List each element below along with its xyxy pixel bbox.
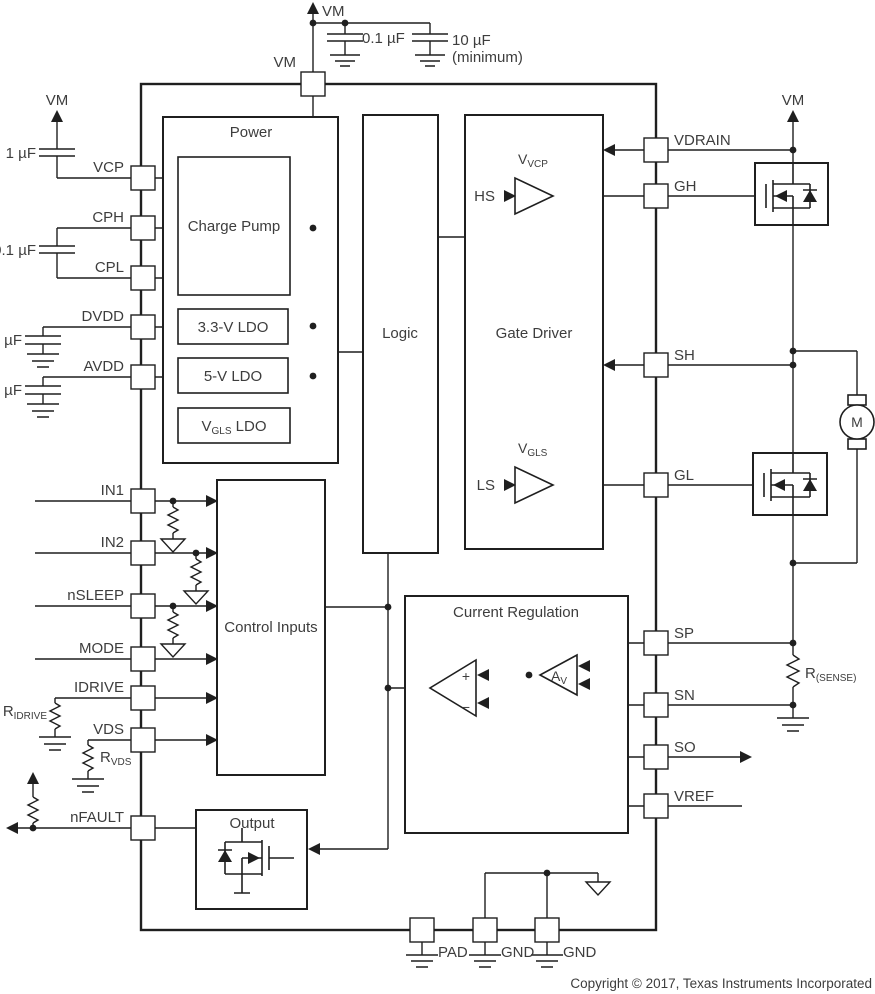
charge-pump-title: Charge Pump <box>188 218 281 235</box>
control-inputs-title: Control Inputs <box>224 619 317 636</box>
pin-label-gl: GL <box>674 467 694 484</box>
pin-nfault <box>131 816 155 840</box>
vds-resistor <box>83 745 93 771</box>
pin-label-sn: SN <box>674 687 695 704</box>
pin-label-idrive: IDRIVE <box>74 679 124 696</box>
motor-terminal-top <box>848 395 866 405</box>
ldo-3v3-title: 3.3-V LDO <box>198 319 269 336</box>
nsleep-pulldown-resistor <box>168 612 178 638</box>
pin-label-nsleep: nSLEEP <box>67 587 124 604</box>
pin-gh <box>644 184 668 208</box>
pin-idrive <box>131 686 155 710</box>
gate-driver-title: Gate Driver <box>496 325 573 342</box>
pin-nsleep <box>131 594 155 618</box>
cap-dvdd-label: 1 µF <box>0 332 22 349</box>
block-diagram: M <box>0 0 875 994</box>
pin-vcp <box>131 166 155 190</box>
current-regulation-block <box>405 596 628 833</box>
power-title: Power <box>230 124 273 141</box>
pin-sn <box>644 693 668 717</box>
ldo-vgls-title: VGLS LDO <box>201 418 266 437</box>
pin-vref <box>644 794 668 818</box>
vdrain-arrow <box>603 144 615 156</box>
high-side-mosfet <box>755 163 828 225</box>
cap-bulk2-label-2: (minimum) <box>452 49 523 66</box>
output-block-arrow <box>308 843 320 855</box>
current-regulation-title: Current Regulation <box>453 604 579 621</box>
pin-label-in2: IN2 <box>101 534 124 551</box>
r-idrive-label: RIDRIVE <box>3 703 48 722</box>
nfault-pullup-arrow <box>27 772 39 784</box>
motor-label: M <box>851 414 863 430</box>
cap-flying-label: 0.1 µF <box>0 242 36 259</box>
pin-label-in1: IN1 <box>101 482 124 499</box>
pin-label-gnd2: GND <box>563 944 597 961</box>
pin-sh <box>644 353 668 377</box>
cap-bulk1-label: 0.1 µF <box>362 30 405 47</box>
pin-in2 <box>131 541 155 565</box>
ls-label: LS <box>477 477 495 494</box>
pin-label-mode: MODE <box>79 640 124 657</box>
pin-label-dvdd: DVDD <box>81 308 124 325</box>
pin-label-cph: CPH <box>92 209 124 226</box>
logic-title: Logic <box>382 325 418 342</box>
pin-gnd1 <box>473 918 497 942</box>
vm-top-arrow <box>307 2 319 14</box>
nfault-out-arrow <box>6 822 18 834</box>
pin-sp <box>644 631 668 655</box>
pin-label-vcp: VCP <box>93 159 124 176</box>
pin-label-sp: SP <box>674 625 694 642</box>
vm-left-arrow <box>51 110 63 122</box>
idrive-resistor <box>50 703 60 729</box>
pin-cpl <box>131 266 155 290</box>
in1-pulldown-resistor <box>168 507 178 533</box>
motor: M <box>840 395 874 449</box>
copyright-text: Copyright © 2017, Texas Instruments Inco… <box>570 976 872 991</box>
pin-label-nfault: nFAULT <box>70 809 124 826</box>
so-out-arrow <box>740 751 752 763</box>
pin-so <box>644 745 668 769</box>
pin-vds <box>131 728 155 752</box>
vm-right-label: VM <box>782 92 805 109</box>
pin-dvdd <box>131 315 155 339</box>
pin-mode <box>131 647 155 671</box>
output-title: Output <box>229 815 275 832</box>
pin-label-so: SO <box>674 739 696 756</box>
pin-pad <box>410 918 434 942</box>
pin-in1 <box>131 489 155 513</box>
vm-top-label: VM <box>322 3 345 20</box>
hs-label: HS <box>474 188 495 205</box>
pin-avdd <box>131 365 155 389</box>
pin-label-vds: VDS <box>93 721 124 738</box>
pin-label-cpl: CPL <box>95 259 124 276</box>
vm-right-arrow <box>787 110 799 122</box>
pin-label-sh: SH <box>674 347 695 364</box>
pin-gl <box>644 473 668 497</box>
pin-label-avdd: AVDD <box>83 358 124 375</box>
comparator-minus-label: − <box>462 699 470 715</box>
r-sense-label: R(SENSE) <box>805 665 856 684</box>
pin-vm <box>301 72 325 96</box>
pin-vdrain <box>644 138 668 162</box>
comparator-plus-label: + <box>462 668 470 684</box>
sh-arrow <box>603 359 615 371</box>
in2-pulldown-resistor <box>191 559 201 585</box>
r-vds-label: RVDS <box>100 749 132 768</box>
pin-label-vm: VM <box>274 54 297 71</box>
pin-label-vref: VREF <box>674 788 714 805</box>
low-side-mosfet <box>753 453 827 515</box>
pin-gnd2 <box>535 918 559 942</box>
vm-left-label: VM <box>46 92 69 109</box>
ldo-5v-title: 5-V LDO <box>204 368 262 385</box>
cap-bulk2-label-1: 10 µF <box>452 32 491 49</box>
pin-label-pad: PAD <box>438 944 468 961</box>
motor-terminal-bottom <box>848 439 866 449</box>
cap-avdd-label: 1 µF <box>0 382 22 399</box>
pin-label-vdrain: VDRAIN <box>674 132 731 149</box>
cap-vcp-label: 1 µF <box>6 145 36 162</box>
nfault-pullup-resistor <box>28 797 38 823</box>
pin-cph <box>131 216 155 240</box>
sense-resistor <box>787 655 799 687</box>
pin-label-gh: GH <box>674 178 697 195</box>
pin-label-gnd1: GND <box>501 944 535 961</box>
